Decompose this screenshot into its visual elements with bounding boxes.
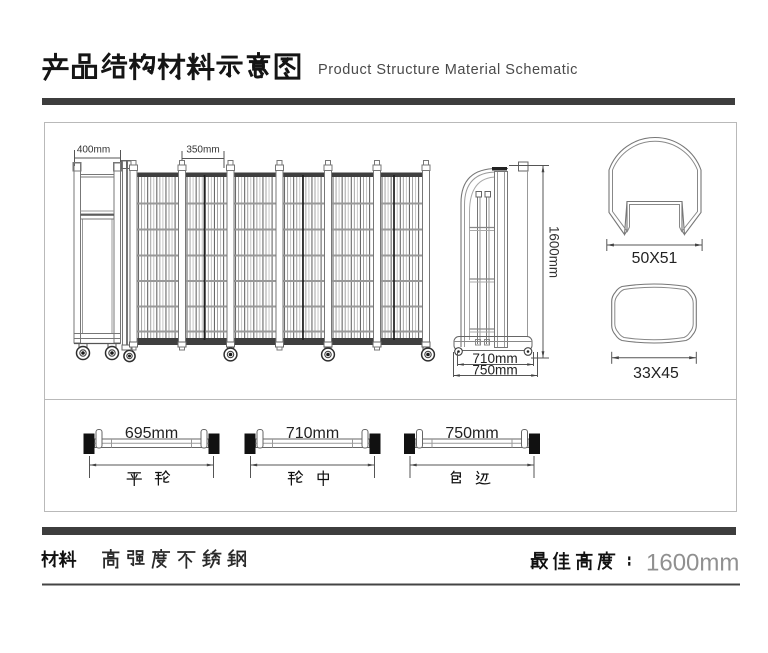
svg-text:400mm: 400mm bbox=[77, 145, 110, 156]
svg-text:350mm: 350mm bbox=[186, 145, 219, 156]
svg-text:1600mm: 1600mm bbox=[646, 550, 739, 577]
svg-text:33X45: 33X45 bbox=[633, 365, 679, 382]
svg-text:750mm: 750mm bbox=[472, 363, 517, 378]
svg-text:710mm: 710mm bbox=[286, 425, 339, 442]
svg-text:50X51: 50X51 bbox=[632, 250, 678, 267]
svg-text:750mm: 750mm bbox=[445, 425, 498, 442]
svg-text:Product Structure Material Sch: Product Structure Material Schematic bbox=[318, 62, 578, 78]
svg-text:1600mm: 1600mm bbox=[547, 226, 562, 278]
svg-text:695mm: 695mm bbox=[125, 425, 178, 442]
